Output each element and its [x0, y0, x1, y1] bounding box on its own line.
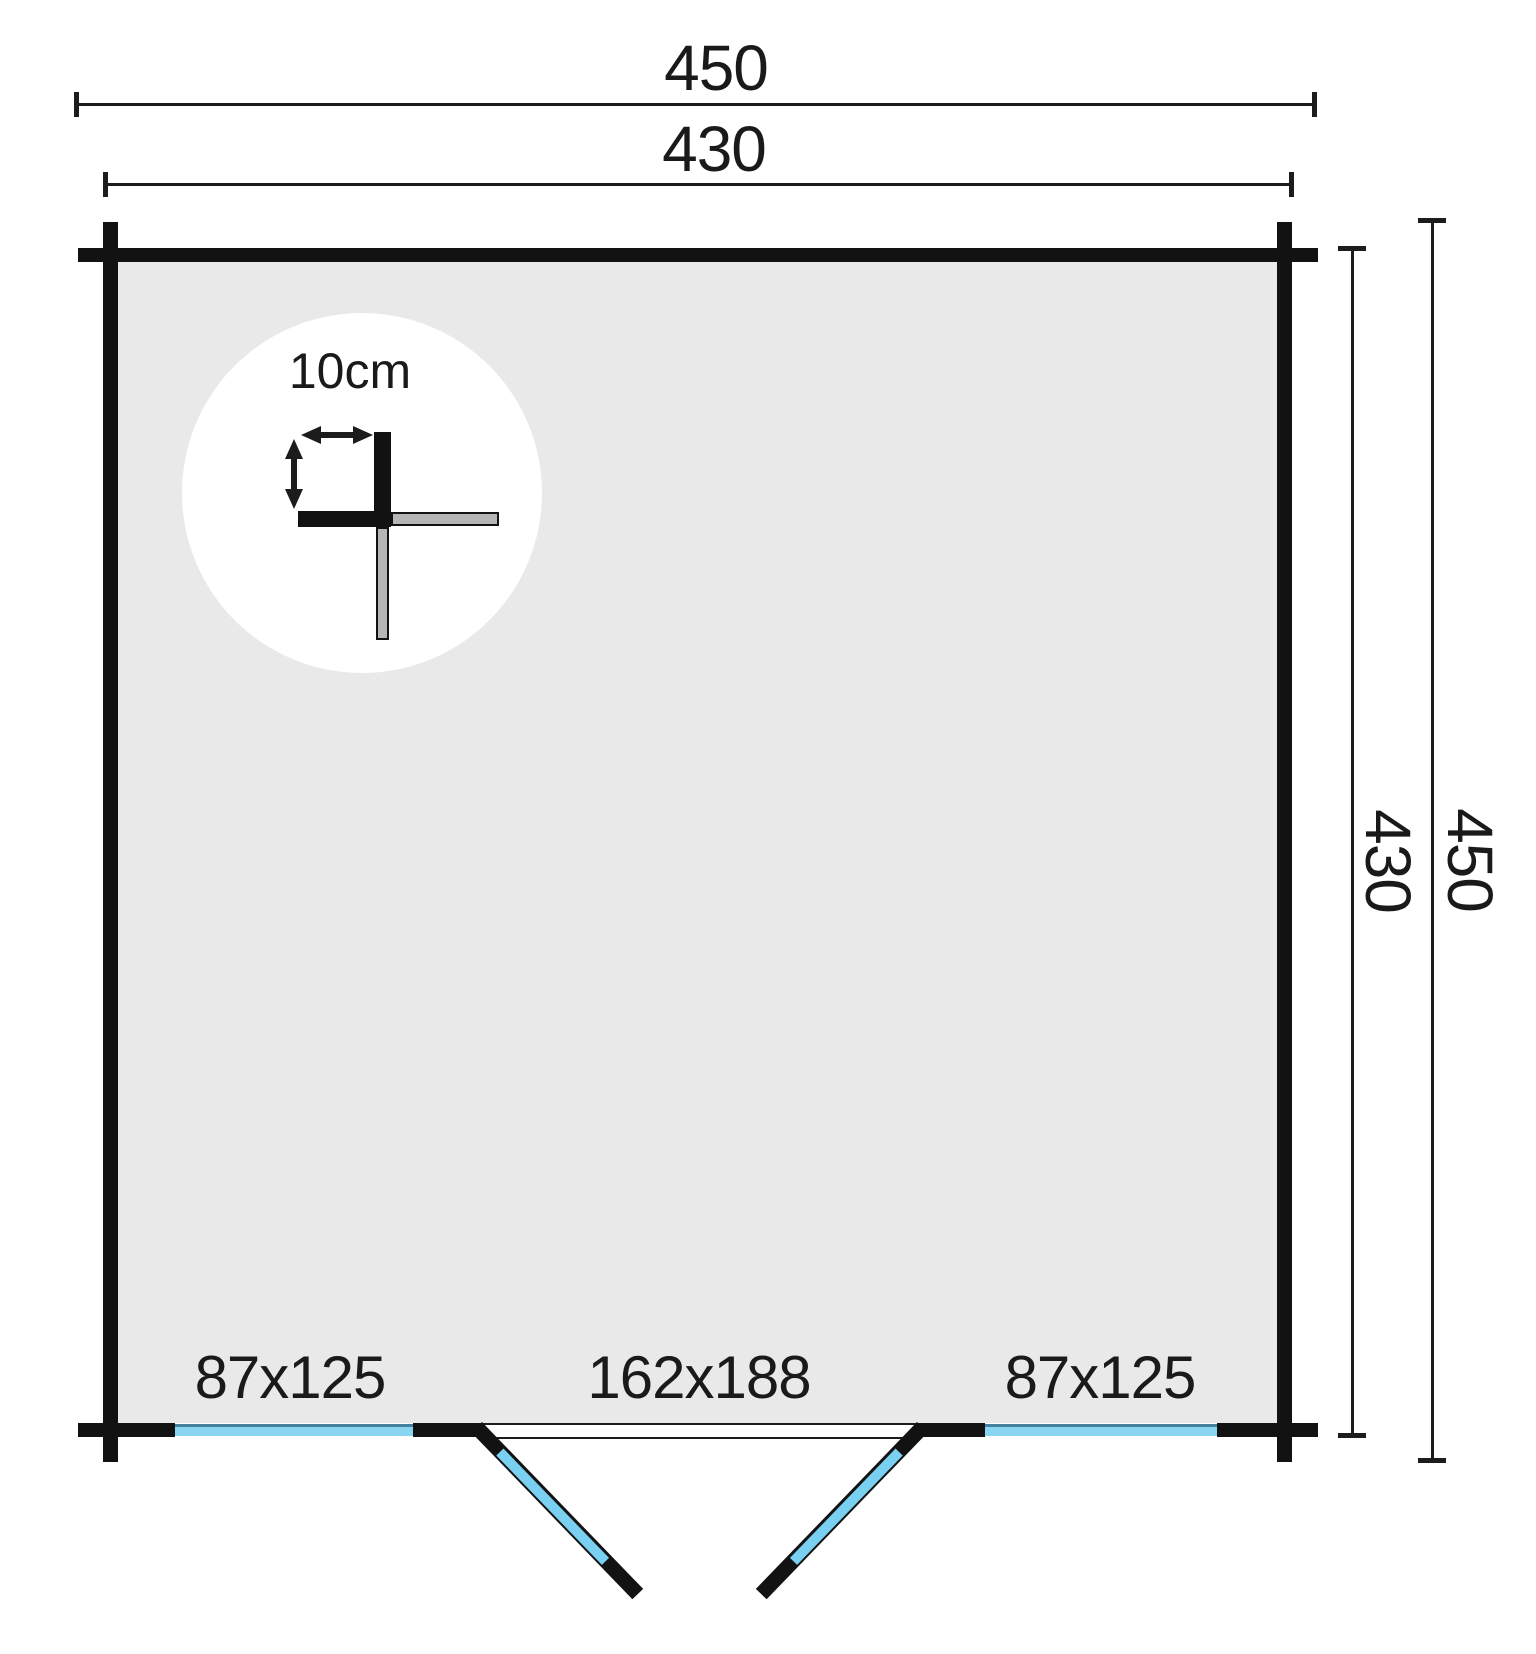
dim-label-top-outer: 450 [616, 38, 816, 98]
dim-label-right-inner: 430 [1358, 761, 1418, 961]
door-leaf-right [756, 1422, 928, 1599]
door-leaf-left-glass [497, 1448, 610, 1564]
left-window-label: 87x125 [150, 1348, 430, 1408]
top-wall [78, 248, 1318, 262]
dim-tick-top-outer-right [1312, 92, 1317, 117]
dim-label-top-inner: 430 [614, 119, 814, 179]
dim-tick-top-inner-left [103, 172, 108, 197]
joint-log-horizontal-black [298, 511, 391, 527]
dim-tick-right-inner-top [1338, 246, 1366, 251]
dim-tick-right-inner-bottom [1338, 1433, 1366, 1438]
dim-tick-top-inner-right [1289, 172, 1294, 197]
dim-tick-top-outer-left [74, 92, 79, 117]
thickness-arrow-horizontal-icon [301, 424, 373, 446]
dim-tick-right-outer-bottom [1418, 1458, 1446, 1463]
door-label: 162x188 [559, 1348, 839, 1408]
bottom-wall-segment-left [78, 1423, 175, 1437]
bottom-wall-segment-mid-left [413, 1423, 482, 1437]
dim-label-right-outer: 450 [1440, 760, 1500, 960]
right-window [985, 1424, 1217, 1436]
joint-log-horizontal-gray [391, 512, 499, 526]
left-wall [103, 222, 118, 1462]
right-window-label: 87x125 [960, 1348, 1240, 1408]
thickness-arrow-vertical-icon [283, 439, 305, 509]
door-leaf-left [471, 1422, 643, 1599]
wall-thickness-label: 10cm [250, 341, 450, 401]
bottom-wall-segment-mid-right [917, 1423, 985, 1437]
door-opening [482, 1423, 917, 1439]
floor-plan-drawing: 10cm 450 430 430 [0, 0, 1536, 1654]
bottom-wall-segment-right [1217, 1423, 1318, 1437]
right-wall [1277, 222, 1292, 1462]
left-window [175, 1424, 413, 1436]
joint-log-vertical-gray [376, 527, 389, 640]
dim-tick-right-outer-top [1418, 218, 1446, 223]
door-leaf-right-glass [790, 1448, 903, 1564]
